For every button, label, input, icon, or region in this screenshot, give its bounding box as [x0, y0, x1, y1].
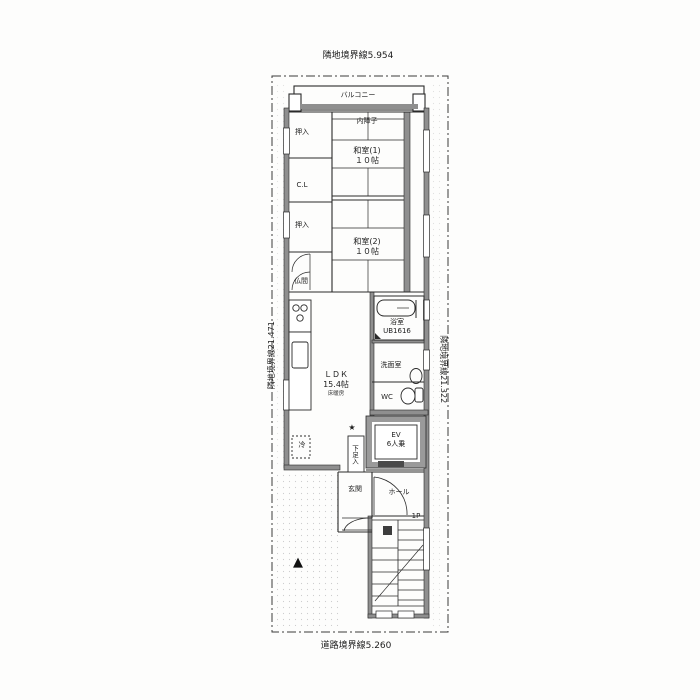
wc-label: WC — [374, 393, 400, 402]
hall-label: ホール — [378, 488, 420, 497]
oshiire-upper-label: 押入 — [288, 128, 316, 137]
stair-break-line — [375, 545, 423, 601]
butsuma-label: 仏間 — [287, 277, 315, 286]
bathroom-label: 浴室 UB1616 — [374, 318, 420, 336]
elevator-capacity: 6人乗 — [373, 440, 419, 449]
tatami-grid — [332, 112, 404, 292]
boundary-label-right: 隣地境界線21.322 — [438, 314, 448, 424]
washitsu2-name: 和室(2) — [336, 237, 398, 247]
washitsu1-size: １０帖 — [336, 156, 398, 166]
floor-plan-drawing — [0, 0, 700, 700]
star-marker: ★ — [346, 423, 358, 433]
ldk-name: ＬＤＫ — [314, 370, 358, 380]
closet-label: C.L — [288, 181, 316, 190]
wc-bottom-wall — [370, 410, 428, 415]
elevator-door — [378, 461, 404, 467]
balcony-window-sill — [300, 104, 418, 109]
elevator-name: EV — [373, 431, 419, 440]
stairs — [372, 520, 424, 606]
boundary-label-left: 隣地境界線21.471 — [267, 300, 277, 410]
washitsu2-size: １０帖 — [336, 247, 398, 257]
ldk-size: 15.4帖 — [314, 380, 358, 390]
toilet — [401, 388, 423, 404]
ldk-note: 床暖房 — [314, 391, 358, 398]
balcony-label: バルコニー — [326, 91, 390, 100]
shoe-cabinet-label: 下足入 — [351, 440, 358, 470]
stove — [289, 300, 311, 332]
washitsu1-name: 和室(1) — [336, 146, 398, 156]
elevator-label: EV 6人乗 — [373, 431, 419, 449]
refrigerator-label: 冷 — [296, 441, 308, 450]
stairs-label: 1P — [406, 512, 426, 521]
genkan-label: 玄関 — [340, 485, 370, 494]
ldk-label: ＬＤＫ 15.4帖 床暖房 — [314, 370, 358, 398]
inner-shoji-label: 内障子 — [338, 117, 396, 126]
stair-landing-marker — [383, 526, 392, 535]
direction-marker: ▲ — [288, 555, 308, 572]
washitsu2-label: 和室(2) １０帖 — [336, 237, 398, 258]
bathroom-name: 浴室 — [374, 318, 420, 327]
floor-plan-page: 隣地境界線5.954 道路境界線5.260 隣地境界線21.471 隣地境界線2… — [0, 0, 700, 700]
bathroom-size: UB1616 — [374, 327, 420, 336]
kitchen-fixtures — [289, 300, 311, 458]
tatami-right-wall — [404, 112, 410, 292]
boundary-label-top: 隣地境界線5.954 — [298, 51, 418, 63]
washitsu1-label: 和室(1) １０帖 — [336, 146, 398, 167]
bathtub — [377, 300, 415, 316]
washbasin — [410, 369, 422, 384]
boundary-label-bottom: 道路境界線5.260 — [296, 641, 416, 653]
oshiire-lower-label: 押入 — [288, 221, 316, 230]
washroom-label: 洗面室 — [368, 361, 414, 370]
